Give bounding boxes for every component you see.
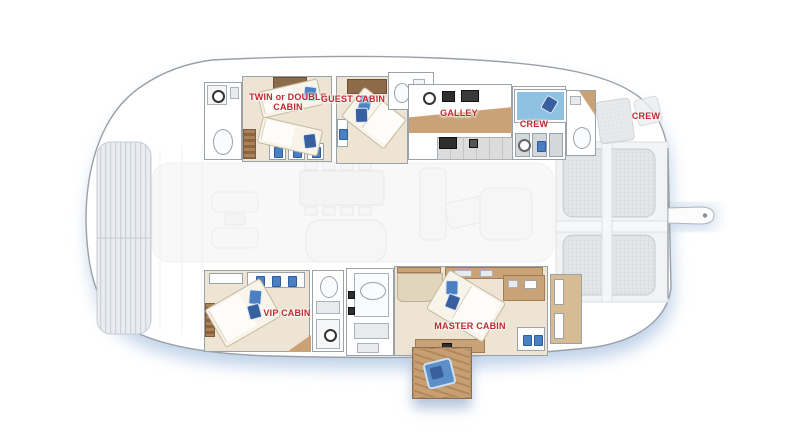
crew-cabin-label: CREW	[512, 119, 556, 129]
master-bathroom	[346, 268, 394, 356]
gangway	[668, 207, 714, 224]
crew-bathroom	[566, 90, 596, 156]
corner-trim	[287, 335, 311, 352]
forward-bathroom	[204, 82, 242, 160]
fitting-icon	[348, 307, 355, 315]
sink-icon	[570, 96, 581, 105]
double-sink-icon	[461, 90, 479, 102]
toilet-icon	[213, 129, 233, 155]
sink-icon	[230, 87, 239, 99]
cabinet	[554, 279, 564, 305]
master-cabin-label: MASTER CABIN	[408, 321, 532, 331]
locker	[515, 133, 530, 157]
twin-double-cabin	[242, 76, 332, 162]
sink-icon	[442, 91, 455, 102]
toilet-icon	[573, 127, 591, 149]
closet	[337, 119, 348, 147]
pillow-icon	[355, 108, 369, 123]
shower-head-icon	[212, 90, 225, 103]
pillow-icon	[303, 133, 318, 149]
twin-cabin-label: TWIN or DOUBLE CABIN	[246, 92, 330, 112]
vanity	[503, 275, 545, 301]
guest-cabin-label: GUEST CABIN	[320, 94, 386, 104]
galley-label: GALLEY	[424, 108, 494, 118]
shower-head-icon	[324, 329, 337, 342]
corner-shelf	[579, 91, 595, 115]
dressing-area	[550, 274, 582, 344]
deck-plan: TWIN or DOUBLE CABIN GUEST CABIN GALLEY …	[0, 0, 800, 440]
sink-icon	[357, 343, 379, 353]
crew-aft-label: CREW	[624, 111, 668, 121]
fold-down-balcony	[413, 348, 471, 398]
pillow-icon	[540, 95, 559, 114]
hull-drawing	[0, 0, 800, 440]
cabin-steps	[243, 129, 256, 159]
crew-bunk	[515, 90, 566, 122]
galley	[408, 84, 512, 160]
lounge-chair	[422, 357, 457, 390]
appliance-icon	[469, 139, 478, 148]
toilet-icon	[320, 276, 338, 298]
twin-bed-2	[257, 116, 323, 156]
vip-cabin-label: VIP CABIN	[252, 308, 322, 318]
locker	[532, 133, 547, 157]
oven-icon	[439, 137, 457, 149]
tub-oval-icon	[360, 282, 386, 300]
bench-icon	[354, 323, 389, 339]
stove-burner-icon	[423, 92, 436, 105]
bench	[209, 273, 243, 284]
cabinet	[554, 313, 564, 339]
master-cabin	[394, 266, 548, 356]
locker	[549, 133, 563, 157]
fitting-icon	[348, 291, 355, 299]
